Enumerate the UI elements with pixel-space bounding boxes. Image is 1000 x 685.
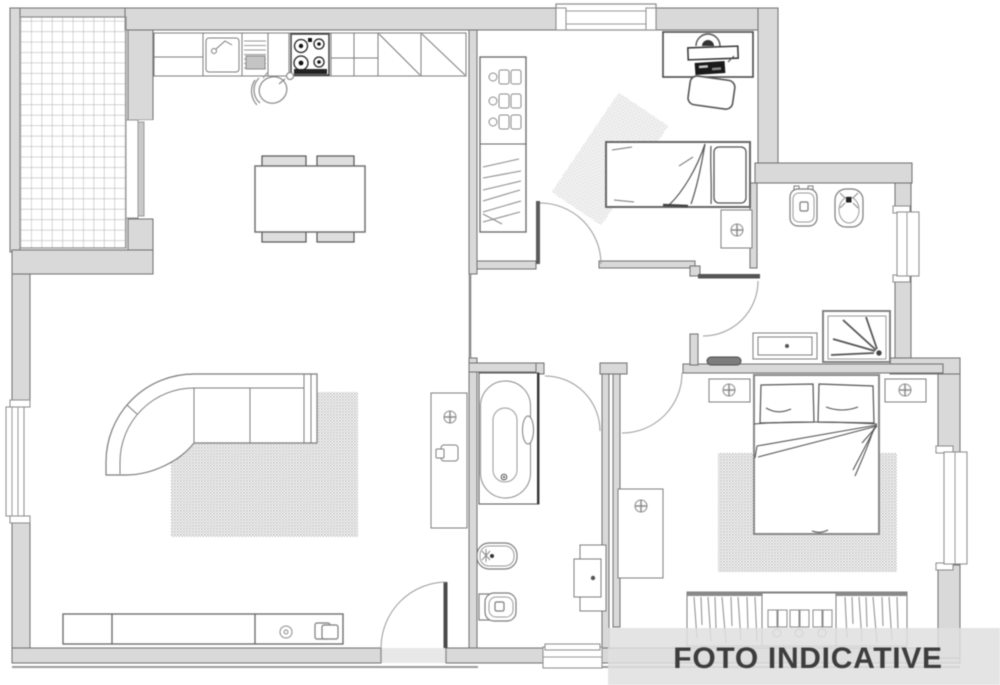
svg-text:FOTO INDICATIVE: FOTO INDICATIVE — [673, 642, 942, 675]
